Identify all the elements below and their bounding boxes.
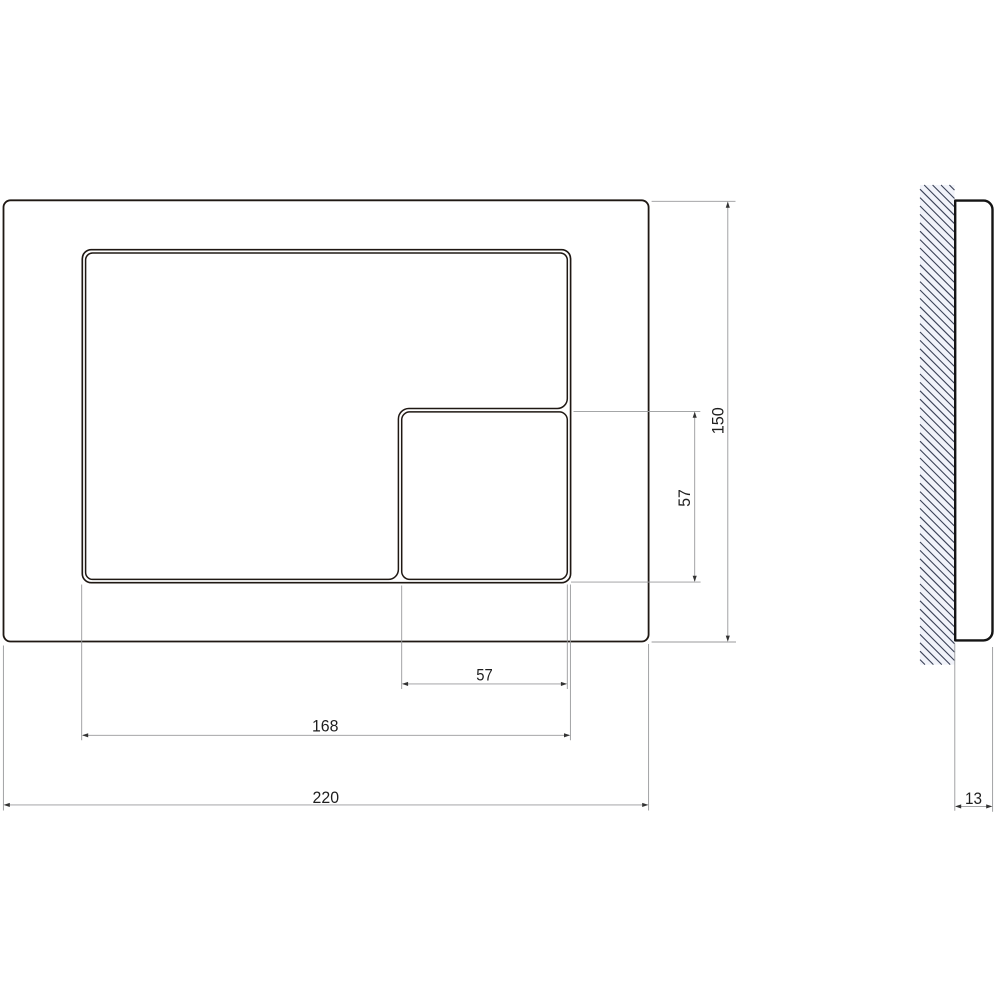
svg-text:57: 57 [675, 489, 694, 507]
svg-text:150: 150 [708, 407, 727, 434]
svg-text:13: 13 [965, 789, 982, 808]
svg-text:57: 57 [476, 666, 493, 685]
svg-text:168: 168 [312, 717, 339, 736]
svg-text:220: 220 [313, 788, 340, 807]
